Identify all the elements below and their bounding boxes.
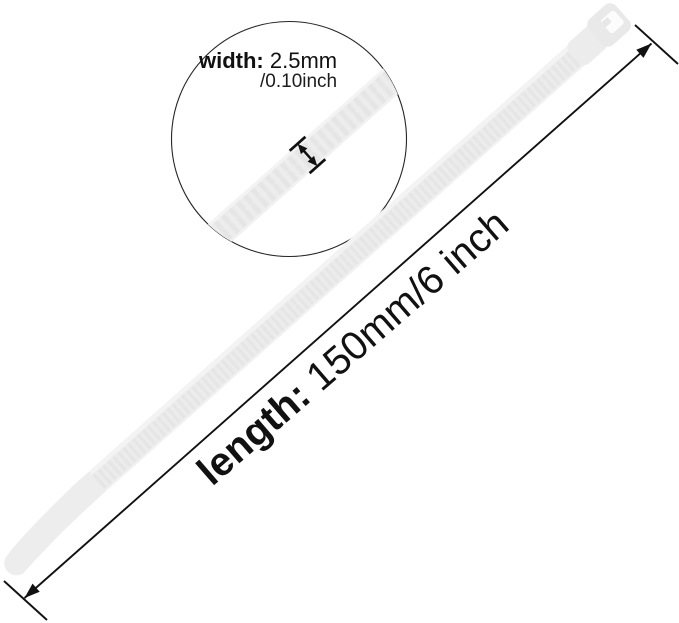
svg-text:/0.10inch: /0.10inch (260, 71, 337, 92)
svg-text:width: 2.5mm: width: 2.5mm (198, 48, 337, 73)
